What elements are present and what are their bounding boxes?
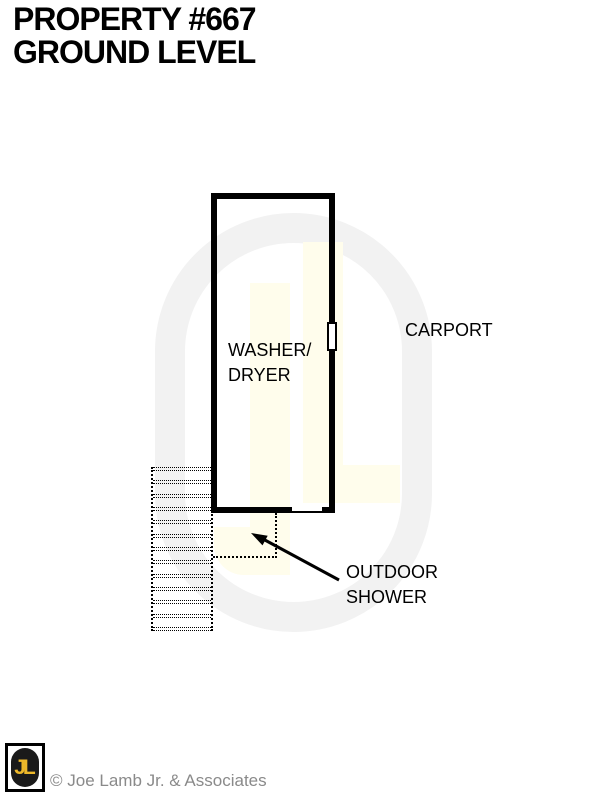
jl-logo-oval: JL [11,748,39,787]
stair-tread [153,547,211,551]
door-threshold-line [292,511,322,513]
stair-tread [153,494,211,498]
page-title: PROPERTY #667 GROUND LEVEL [13,3,256,69]
window-marker [327,322,337,351]
washer-dryer-label: WASHER/ DRYER [228,338,311,388]
stair-tread [153,507,211,511]
outdoor-shower-arrow [244,524,346,586]
washer-dryer-line-2: DRYER [228,363,311,388]
stair-tread [153,600,211,604]
jl-logo: JL [5,743,45,792]
stair-tread [153,534,211,538]
stair-tread [153,520,211,524]
floorplan-canvas: PROPERTY #667 GROUND LEVEL WASHER/ DRYER… [0,0,600,800]
stair-tread [153,587,211,591]
title-line-2: GROUND LEVEL [13,36,256,69]
outdoor-shower-line-2: SHOWER [346,585,438,610]
stair-tread [153,627,211,631]
copyright-text: © Joe Lamb Jr. & Associates [50,771,267,791]
stairs [151,467,213,631]
washer-dryer-line-1: WASHER/ [228,338,311,363]
jl-logo-text: JL [14,756,33,780]
stair-tread [153,467,211,471]
stair-tread [153,480,211,484]
carport-label: CARPORT [405,318,493,343]
stair-tread [153,574,211,578]
outdoor-shower-line-1: OUTDOOR [346,560,438,585]
outdoor-shower-label: OUTDOOR SHOWER [346,560,438,610]
stair-tread [153,560,211,564]
title-line-1: PROPERTY #667 [13,3,256,36]
stair-tread [153,614,211,618]
